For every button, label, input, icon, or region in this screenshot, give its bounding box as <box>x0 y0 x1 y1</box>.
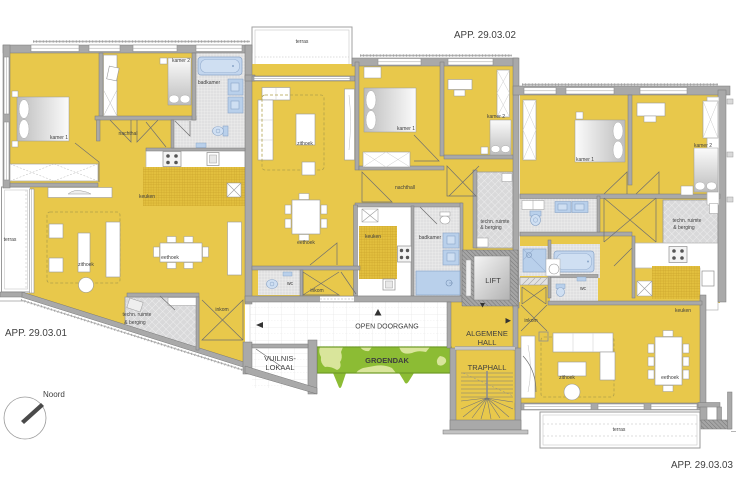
svg-text:kamer 2: kamer 2 <box>172 58 190 64</box>
svg-text:keuken: keuken <box>675 308 691 314</box>
svg-text:Noord: Noord <box>43 390 65 399</box>
svg-text:eethoek: eethoek <box>161 255 179 261</box>
svg-text:& berging: & berging <box>124 320 146 326</box>
svg-text:keuken: keuken <box>139 194 155 200</box>
svg-text:APP. 29.03.02: APP. 29.03.02 <box>454 30 516 41</box>
svg-text:zithoek: zithoek <box>297 141 313 147</box>
svg-text:zithoek: zithoek <box>78 262 94 268</box>
svg-text:& berging: & berging <box>480 225 502 231</box>
svg-text:wc: wc <box>580 286 587 292</box>
svg-text:wc: wc <box>287 281 294 287</box>
svg-text:ALGEMENE: ALGEMENE <box>466 329 508 338</box>
svg-text:nachthal: nachthal <box>119 131 138 137</box>
svg-text:eethoek: eethoek <box>661 375 679 381</box>
svg-text:zithoek: zithoek <box>559 375 575 381</box>
svg-text:kamer 2: kamer 2 <box>694 143 712 149</box>
svg-text:terras: terras <box>296 39 309 45</box>
svg-text:LIFT: LIFT <box>485 276 501 285</box>
svg-text:badkamer: badkamer <box>419 235 442 241</box>
svg-text:techn. ruimte: techn. ruimte <box>673 218 702 224</box>
svg-text:eethoek: eethoek <box>297 240 315 246</box>
svg-text:TRAPHALL: TRAPHALL <box>468 363 507 372</box>
svg-text:keuken: keuken <box>365 234 381 240</box>
svg-text:APP. 29.03.01: APP. 29.03.01 <box>5 328 67 339</box>
svg-text:HALL: HALL <box>478 338 497 347</box>
svg-text:kamer 1: kamer 1 <box>50 135 68 141</box>
svg-text:terras: terras <box>4 237 17 243</box>
svg-text:kamer 1: kamer 1 <box>576 157 594 163</box>
svg-text:LOKAAL: LOKAAL <box>265 363 294 372</box>
svg-text:APP. 29.03.03: APP. 29.03.03 <box>671 460 733 471</box>
svg-text:inkom: inkom <box>310 288 323 294</box>
svg-text:VUILNIS-: VUILNIS- <box>264 354 296 363</box>
svg-text:OPEN DOORGANG: OPEN DOORGANG <box>355 324 418 331</box>
svg-text:inkom: inkom <box>524 318 537 324</box>
svg-text:nachthall: nachthall <box>395 185 415 191</box>
svg-text:GROENDAK: GROENDAK <box>365 356 409 365</box>
svg-text:& berging: & berging <box>673 225 695 231</box>
svg-text:kamer 2: kamer 2 <box>487 114 505 120</box>
svg-text:kamer 1: kamer 1 <box>397 126 415 132</box>
svg-text:terras: terras <box>613 427 626 433</box>
svg-text:inkom: inkom <box>215 307 228 313</box>
svg-text:badkamer: badkamer <box>198 80 221 86</box>
svg-text:techn. ruimte: techn. ruimte <box>123 312 152 318</box>
